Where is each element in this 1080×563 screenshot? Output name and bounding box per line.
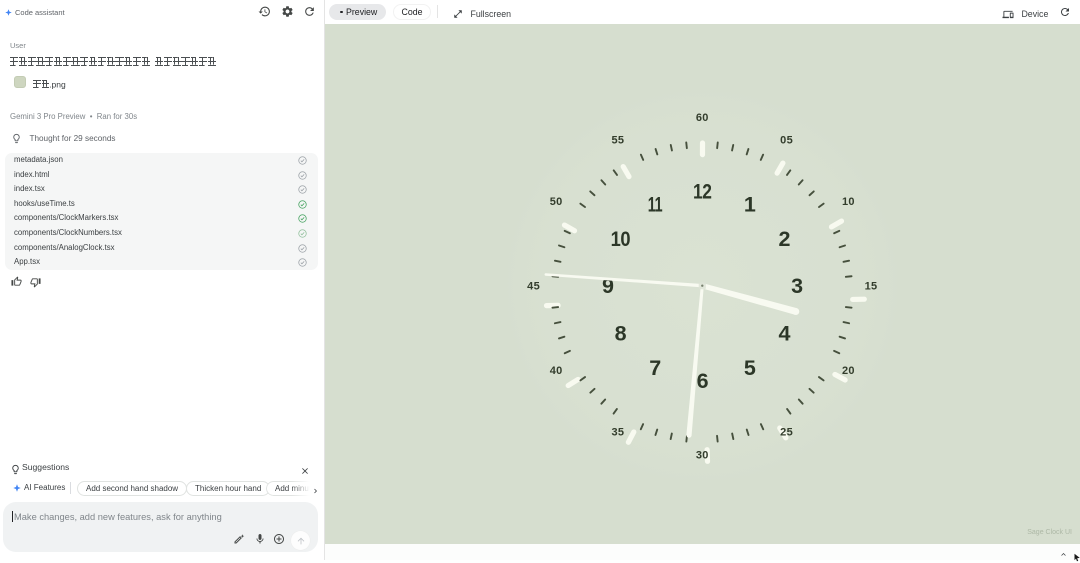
- svg-text:1: 1: [744, 192, 756, 216]
- svg-text:60: 60: [696, 112, 709, 124]
- svg-text:10: 10: [842, 196, 855, 208]
- svg-text:55: 55: [611, 135, 624, 147]
- svg-text:8: 8: [615, 322, 627, 346]
- svg-text:6: 6: [697, 369, 709, 393]
- svg-text:Sage Clock UI: Sage Clock UI: [1027, 529, 1072, 536]
- svg-text:2: 2: [778, 227, 790, 251]
- svg-text:4: 4: [778, 322, 790, 346]
- svg-text:11: 11: [648, 192, 663, 216]
- svg-text:40: 40: [550, 365, 563, 377]
- svg-text:50: 50: [550, 196, 563, 208]
- svg-text:20: 20: [842, 365, 855, 377]
- svg-text:15: 15: [865, 281, 878, 293]
- svg-text:7: 7: [649, 356, 661, 380]
- svg-text:35: 35: [611, 427, 624, 439]
- svg-text:10: 10: [611, 227, 631, 251]
- svg-text:05: 05: [780, 135, 793, 147]
- svg-text:12: 12: [693, 180, 712, 204]
- svg-text:45: 45: [527, 281, 540, 293]
- svg-text:25: 25: [780, 427, 793, 439]
- svg-text:5: 5: [744, 356, 756, 380]
- svg-text:30: 30: [696, 449, 709, 461]
- svg-text:3: 3: [791, 274, 803, 298]
